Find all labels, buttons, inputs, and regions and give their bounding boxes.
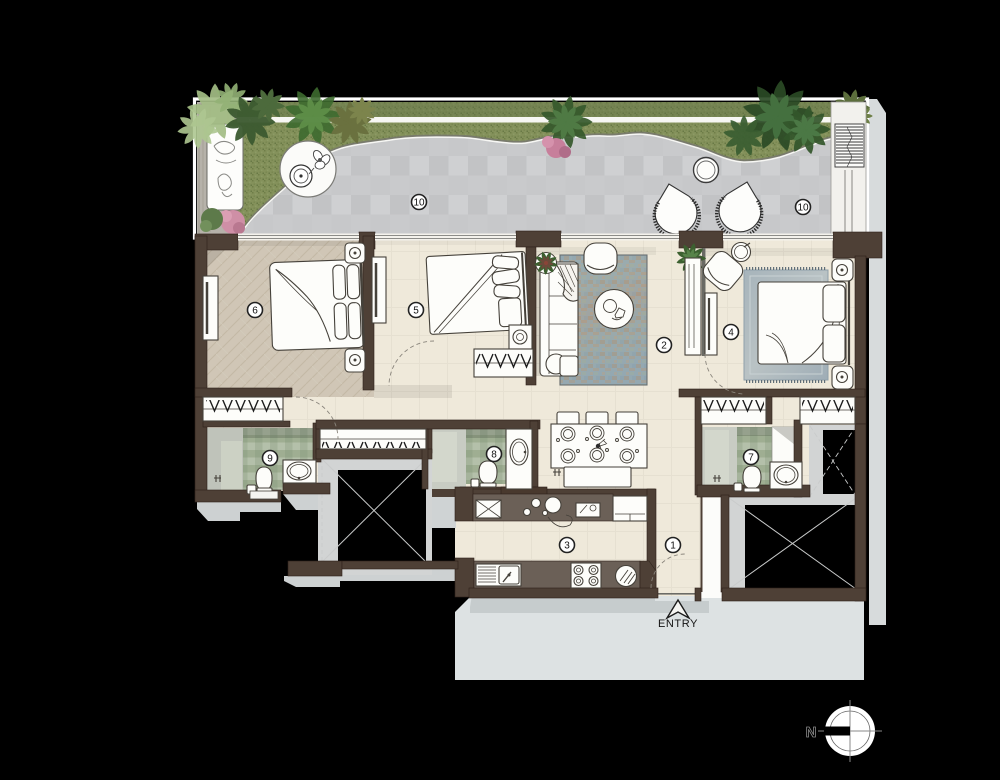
svg-text:2: 2 bbox=[661, 341, 667, 352]
svg-text:N: N bbox=[806, 724, 817, 741]
svg-text:7: 7 bbox=[748, 453, 754, 464]
svg-text:3: 3 bbox=[564, 541, 570, 552]
svg-text:6: 6 bbox=[252, 306, 258, 317]
svg-text:8: 8 bbox=[491, 450, 497, 461]
svg-text:4: 4 bbox=[728, 328, 734, 339]
svg-text:10: 10 bbox=[413, 198, 425, 209]
svg-text:9: 9 bbox=[267, 454, 273, 465]
svg-text:1: 1 bbox=[670, 541, 676, 552]
svg-text:5: 5 bbox=[413, 306, 419, 317]
svg-text:10: 10 bbox=[797, 203, 809, 214]
svg-text:ENTRY: ENTRY bbox=[658, 618, 698, 630]
